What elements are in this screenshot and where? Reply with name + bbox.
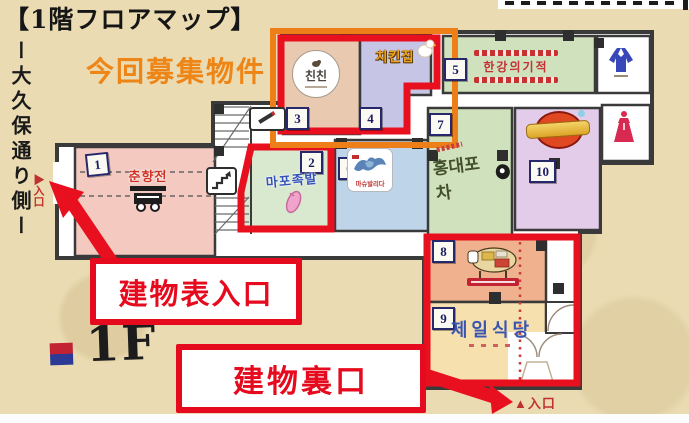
left-entrance-marker: ▶入口 — [30, 174, 46, 207]
unit-4-logo: 치킨집 — [362, 46, 428, 66]
bird-icon — [311, 59, 321, 67]
striped-banner-top — [474, 50, 558, 56]
unit-10-logo — [526, 110, 588, 148]
unit-badge-8: 8 — [432, 240, 455, 263]
unit-6-shop-name: 마슈발리다 — [356, 180, 385, 189]
cigarette-icon — [258, 112, 274, 124]
striped-banner-bottom — [474, 77, 558, 83]
floor-map-screenshot: 【1階フロアマップ】 今回募集物件 ー大久保通り側ー ▶入口 1F 1 2 3 … — [0, 0, 689, 423]
back-entrance-arrow-head — [489, 384, 513, 414]
stairs-icon — [208, 169, 235, 193]
front-entrance-callout: 建物表入口 — [90, 258, 302, 325]
unit-badge-5: 5 — [444, 58, 467, 81]
page-title: 【1階フロアマップ】 — [4, 0, 256, 36]
unit-badge-4: 4 — [359, 107, 382, 130]
unit-4-shop-name: 치킨집 — [376, 49, 415, 64]
back-entrance-callout: 建物裏口 — [176, 344, 426, 413]
beef-cuts-cow-icon — [462, 243, 524, 287]
unit-7-shop-name: 홍대포차 — [431, 147, 497, 204]
unit-1-logo: 춘향전 — [106, 166, 190, 217]
unit-3-logo-subline — [305, 86, 327, 88]
unit-7-logo: 홍대포차 — [431, 146, 513, 205]
pig-trotter-icon — [281, 188, 307, 216]
unit-3-logo: 친친 — [292, 50, 340, 98]
recruiting-label: 今回募集物件 — [86, 50, 266, 90]
unit-5-shop-name: 한강의기적 — [474, 58, 558, 75]
unit-1-shop-name: 춘향전 — [106, 166, 190, 185]
unit-5-logo: 한강의기적 — [474, 50, 558, 83]
stairs-sign — [206, 167, 237, 195]
white-chicken-icon — [416, 38, 436, 58]
food-cart-icon — [126, 186, 170, 212]
smoking-area-sign — [249, 107, 286, 131]
unit-9-logo-subtext — [469, 344, 515, 347]
male-hanbok-icon — [608, 46, 634, 80]
unit-7-logo-seal — [494, 163, 510, 180]
unit-badge-7: 7 — [429, 113, 452, 136]
bottom-entrance-marker: ▲入口 — [514, 393, 556, 412]
unit-badge-10: 10 — [529, 160, 556, 183]
female-hanbok-icon — [612, 110, 636, 148]
unit-2-logo: 마포족발 — [252, 167, 334, 224]
unit-9-logo: 제일식당 — [442, 316, 542, 347]
blue-eagle-art-icon — [351, 153, 389, 179]
unit-6-logo: 마슈발리다 — [347, 148, 393, 192]
unit-3-shop-name: 친친 — [305, 67, 327, 84]
unit-9-shop-name: 제일식당 — [442, 316, 542, 342]
legend-color-square — [50, 343, 74, 366]
unit-8-logo — [462, 243, 524, 292]
unit-badge-3: 3 — [286, 107, 309, 130]
unit-10-logo-dot — [578, 110, 585, 117]
